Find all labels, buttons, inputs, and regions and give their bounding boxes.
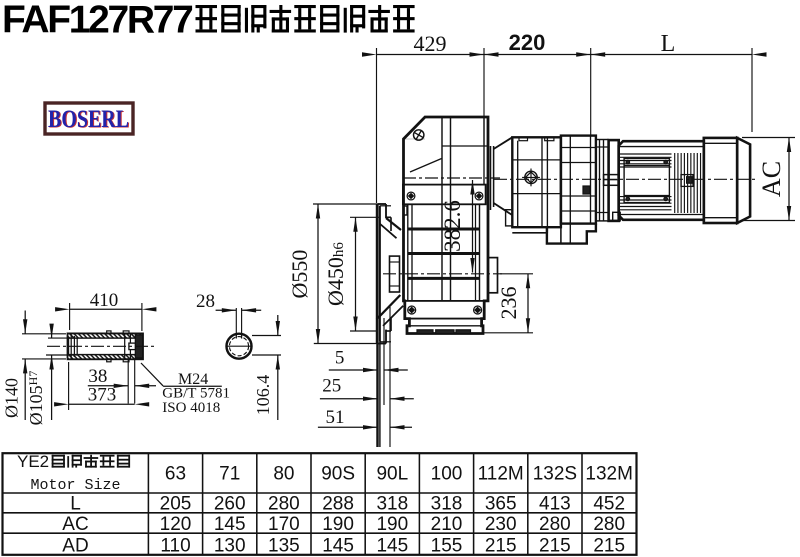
svg-text:280: 280 (593, 514, 625, 535)
svg-text:260: 260 (214, 494, 246, 515)
svg-text:155: 155 (431, 536, 463, 557)
svg-text:BOSERL: BOSERL (48, 106, 129, 133)
svg-text:365: 365 (485, 494, 517, 515)
svg-text:190: 190 (322, 514, 354, 535)
svg-text:452: 452 (593, 494, 625, 515)
svg-text:YE2: YE2 (17, 452, 49, 471)
svg-text:382.6: 382.6 (440, 200, 465, 252)
svg-text:L: L (661, 31, 676, 57)
svg-text:51: 51 (326, 407, 345, 428)
svg-text:280: 280 (268, 494, 300, 515)
svg-text:25: 25 (322, 375, 341, 396)
svg-text:FAF127R77: FAF127R77 (2, 0, 192, 42)
svg-text:Ø550: Ø550 (287, 250, 312, 299)
svg-text:413: 413 (539, 494, 571, 515)
svg-text:215: 215 (485, 536, 517, 557)
svg-text:373: 373 (88, 385, 117, 406)
svg-text:90S: 90S (321, 464, 355, 485)
svg-text:63: 63 (165, 464, 186, 485)
svg-text:71: 71 (219, 464, 240, 485)
svg-text:L: L (70, 494, 81, 515)
svg-text:236: 236 (496, 287, 521, 320)
svg-text:106.4: 106.4 (253, 375, 273, 416)
svg-text:132S: 132S (533, 464, 577, 485)
svg-text:145: 145 (214, 514, 246, 535)
svg-text:Ø140: Ø140 (2, 378, 22, 418)
svg-text:280: 280 (539, 514, 571, 535)
svg-text:170: 170 (268, 514, 300, 535)
svg-text:110: 110 (160, 536, 190, 557)
svg-text:ISO 4018: ISO 4018 (162, 400, 220, 416)
svg-text:318: 318 (376, 494, 408, 515)
svg-text:132M: 132M (585, 464, 633, 485)
svg-text:410: 410 (90, 290, 119, 311)
svg-text:318: 318 (431, 494, 463, 515)
svg-text:80: 80 (273, 464, 294, 485)
svg-text:215: 215 (593, 536, 625, 557)
svg-text:AD: AD (62, 536, 88, 557)
svg-text:230: 230 (485, 514, 517, 535)
svg-text:5: 5 (335, 348, 345, 369)
svg-text:AC: AC (62, 514, 88, 535)
svg-text:28: 28 (196, 291, 215, 312)
svg-text:Motor Size: Motor Size (30, 477, 120, 494)
svg-text:145: 145 (376, 536, 408, 557)
svg-text:130: 130 (214, 536, 246, 557)
svg-text:135: 135 (268, 536, 300, 557)
svg-text:100: 100 (431, 464, 463, 485)
svg-text:429: 429 (414, 31, 447, 56)
svg-text:145: 145 (322, 536, 354, 557)
svg-text:288: 288 (322, 494, 354, 515)
svg-text:210: 210 (431, 514, 463, 535)
svg-text:220: 220 (509, 30, 546, 55)
svg-text:205: 205 (160, 494, 192, 515)
svg-text:90L: 90L (376, 464, 408, 485)
svg-text:215: 215 (539, 536, 571, 557)
svg-text:112M: 112M (478, 464, 524, 485)
svg-text:120: 120 (160, 514, 192, 535)
svg-text:190: 190 (376, 514, 408, 535)
svg-text:AC: AC (757, 161, 786, 197)
